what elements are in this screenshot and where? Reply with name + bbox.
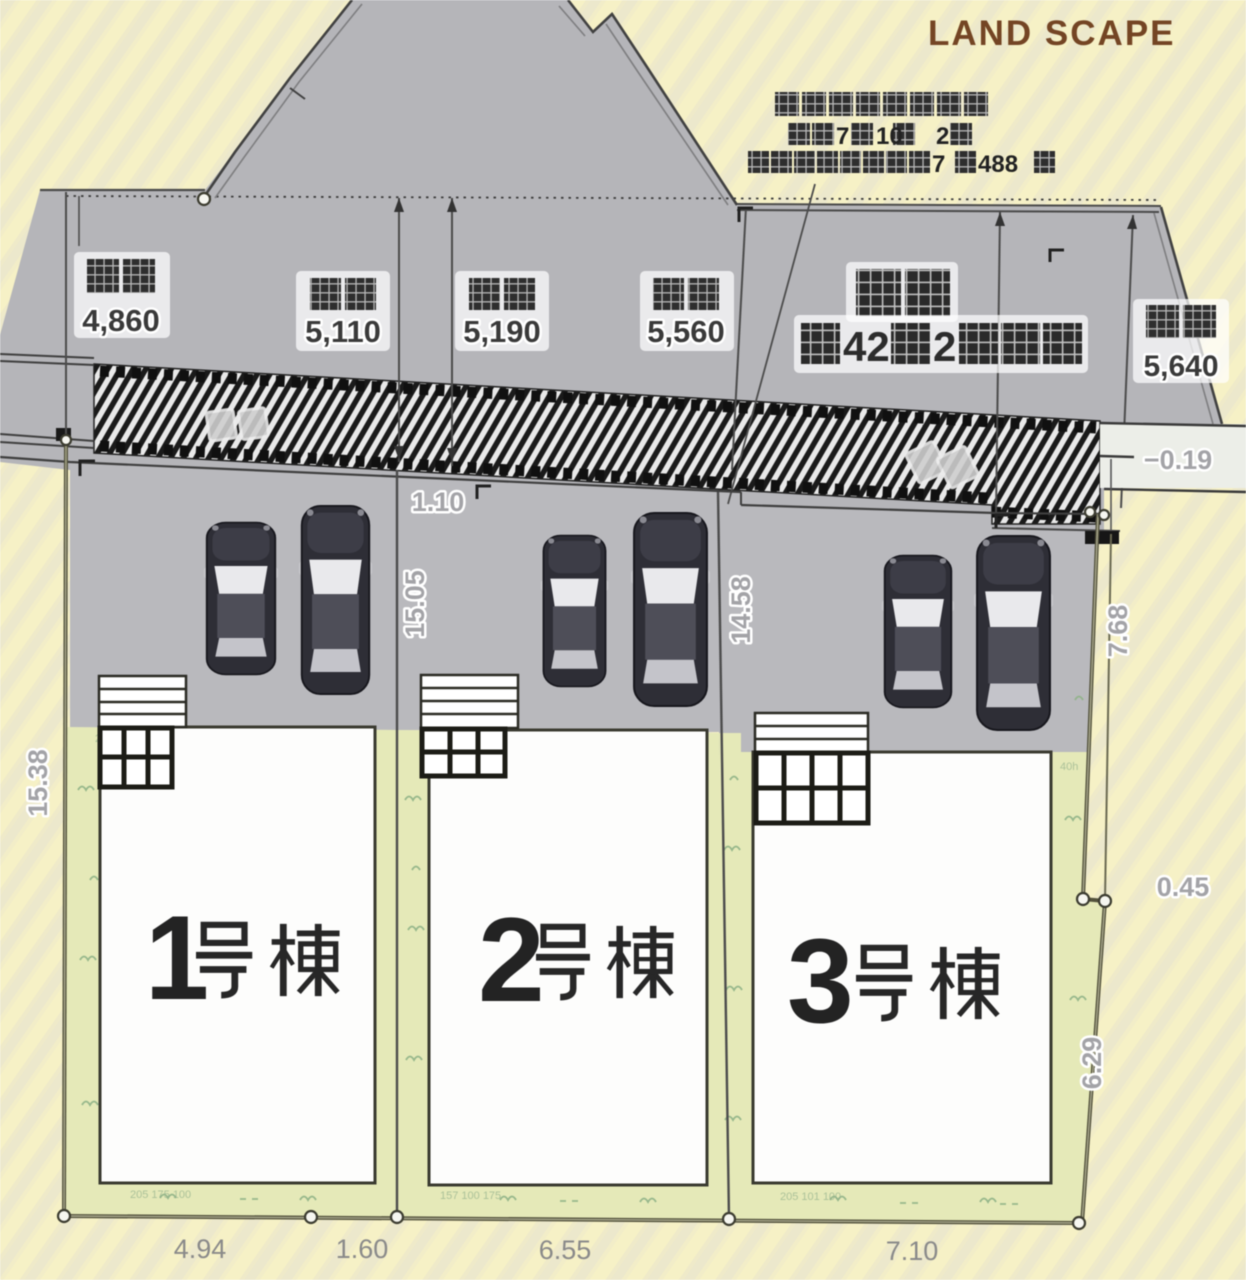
svg-text:2: 2 xyxy=(936,123,949,150)
svg-text:42: 42 xyxy=(843,323,890,370)
svg-text:205 101 100: 205 101 100 xyxy=(780,1191,841,1203)
svg-text:5,190: 5,190 xyxy=(463,314,541,349)
svg-text:5,560: 5,560 xyxy=(647,314,725,349)
svg-text:1.10: 1.10 xyxy=(412,487,465,517)
svg-text:5,640: 5,640 xyxy=(1143,350,1218,383)
svg-text:1.60: 1.60 xyxy=(336,1234,389,1264)
svg-text:7: 7 xyxy=(932,151,945,178)
svg-text:4,860: 4,860 xyxy=(82,303,160,338)
svg-text:0.45: 0.45 xyxy=(1157,872,1210,902)
svg-text:7.10: 7.10 xyxy=(886,1236,939,1266)
svg-text:LAND SCAPE: LAND SCAPE xyxy=(928,14,1176,53)
svg-text:488: 488 xyxy=(978,151,1018,178)
svg-text:7.68: 7.68 xyxy=(1103,605,1133,658)
svg-text:15.38: 15.38 xyxy=(23,749,53,817)
svg-text:10: 10 xyxy=(876,123,903,150)
svg-text:2: 2 xyxy=(478,893,545,1027)
svg-text:14.58: 14.58 xyxy=(726,576,756,644)
svg-text:5,110: 5,110 xyxy=(305,314,381,349)
svg-text:−0.19: −0.19 xyxy=(1144,445,1212,475)
svg-text:15.05: 15.05 xyxy=(400,570,430,638)
svg-text:205 175 100: 205 175 100 xyxy=(130,1189,191,1201)
svg-text:4.94: 4.94 xyxy=(174,1234,227,1264)
svg-text:6.29: 6.29 xyxy=(1077,1037,1107,1090)
svg-text:157 100 175: 157 100 175 xyxy=(440,1190,501,1202)
svg-text:7: 7 xyxy=(836,123,849,150)
svg-text:3: 3 xyxy=(787,914,854,1048)
svg-text:2: 2 xyxy=(933,323,956,370)
svg-text:6.55: 6.55 xyxy=(539,1235,592,1265)
svg-text:40h: 40h xyxy=(1060,761,1078,773)
